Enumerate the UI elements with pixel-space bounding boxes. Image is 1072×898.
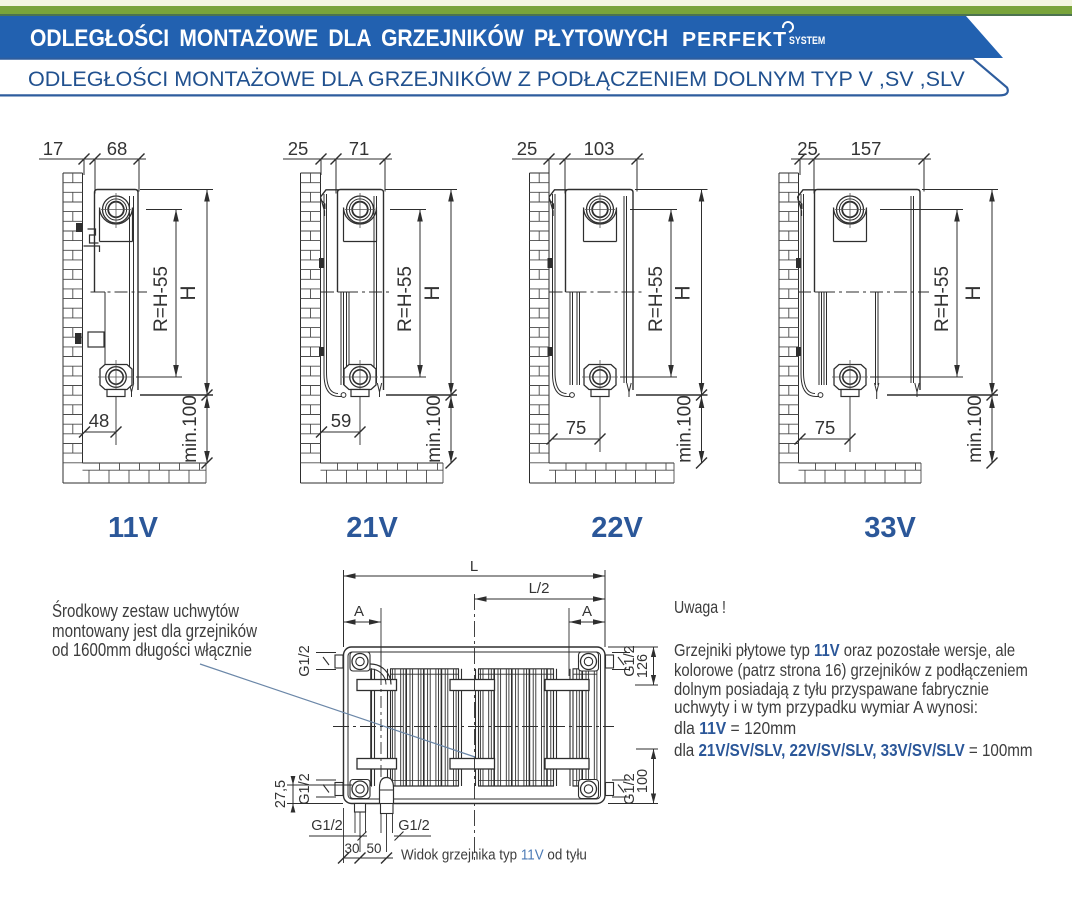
svg-text:48: 48 <box>89 410 110 431</box>
svg-text:L/2: L/2 <box>529 580 550 597</box>
svg-text:59: 59 <box>331 410 352 431</box>
svg-text:H: H <box>672 285 695 300</box>
svg-text:22V: 22V <box>591 512 643 544</box>
svg-text:G1/2: G1/2 <box>297 645 313 676</box>
svg-text:75: 75 <box>815 417 836 438</box>
svg-text:71: 71 <box>349 138 370 159</box>
svg-text:R=H-55: R=H-55 <box>151 266 172 332</box>
svg-text:A: A <box>354 603 364 620</box>
svg-text:A: A <box>582 603 592 620</box>
svg-text:27,5: 27,5 <box>273 780 289 808</box>
svg-text:G1/2: G1/2 <box>311 818 342 834</box>
svg-text:min.100: min.100 <box>424 395 445 463</box>
svg-text:G1/2: G1/2 <box>297 773 313 804</box>
svg-text:Widok grzejnika typ 11V od tył: Widok grzejnika typ 11V od tyłu <box>401 847 587 864</box>
svg-text:68: 68 <box>107 138 128 159</box>
svg-text:25: 25 <box>517 138 538 159</box>
svg-text:17: 17 <box>43 138 64 159</box>
svg-text:75: 75 <box>566 417 587 438</box>
svg-text:R=H-55: R=H-55 <box>646 266 667 332</box>
svg-text:103: 103 <box>584 138 615 159</box>
svg-text:30: 30 <box>344 841 359 856</box>
svg-text:R=H-55: R=H-55 <box>932 266 953 332</box>
svg-text:G1/2: G1/2 <box>622 773 638 804</box>
svg-text:min.100: min.100 <box>965 395 986 463</box>
svg-text:25: 25 <box>288 138 309 159</box>
svg-text:H: H <box>962 285 985 300</box>
svg-text:H: H <box>177 285 200 300</box>
svg-text:33V: 33V <box>864 512 916 544</box>
svg-text:25: 25 <box>797 138 818 159</box>
svg-text:21V: 21V <box>346 512 398 544</box>
svg-text:H: H <box>421 285 444 300</box>
svg-text:157: 157 <box>851 138 882 159</box>
svg-text:G1/2: G1/2 <box>622 645 638 676</box>
svg-text:R=H-55: R=H-55 <box>395 266 416 332</box>
svg-text:11V: 11V <box>108 512 159 544</box>
svg-text:50: 50 <box>366 841 381 856</box>
svg-text:L: L <box>470 558 478 575</box>
svg-text:min.100: min.100 <box>180 395 201 463</box>
svg-text:min.100: min.100 <box>675 395 696 463</box>
